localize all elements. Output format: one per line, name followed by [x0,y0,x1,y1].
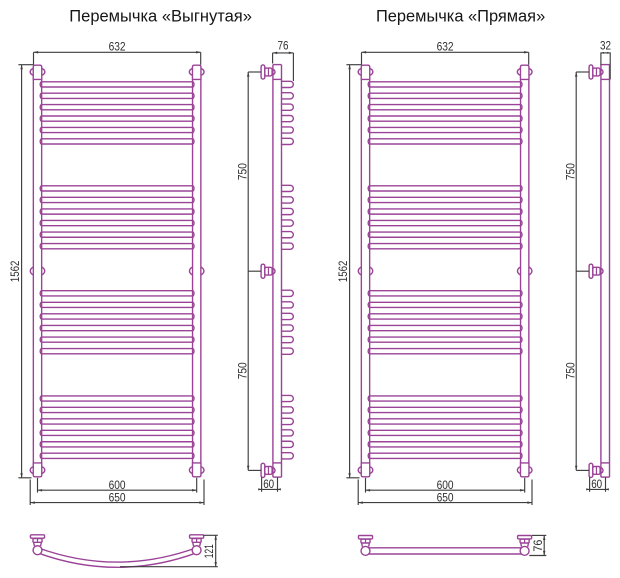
svg-text:Перемычка «Прямая»: Перемычка «Прямая» [376,8,545,26]
svg-text:32: 32 [600,40,611,53]
svg-text:121: 121 [203,544,216,558]
svg-text:76: 76 [278,40,289,53]
svg-text:Перемычка «Выгнутая»: Перемычка «Выгнутая» [69,8,252,26]
svg-text:76: 76 [532,540,545,552]
